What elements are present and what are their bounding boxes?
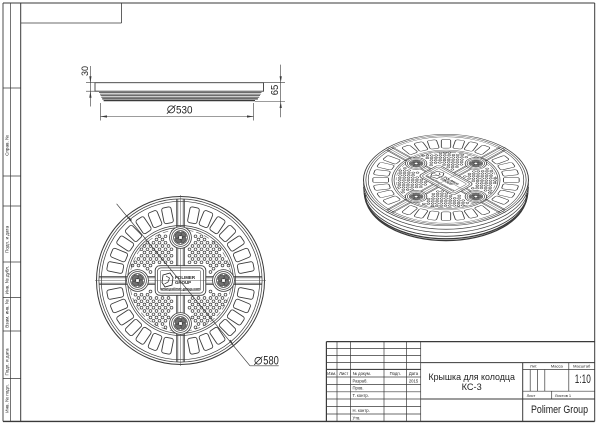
svg-text:www.polimer-group.com: www.polimer-group.com — [160, 287, 201, 291]
svg-text:1:10: 1:10 — [575, 374, 591, 386]
svg-text:Н. контр.: Н. контр. — [353, 408, 370, 413]
svg-text:Изм.: Изм. — [327, 371, 336, 376]
svg-text:Крышка для колодца: Крышка для колодца — [428, 372, 515, 382]
svg-text:Лист: Лист — [339, 371, 348, 376]
svg-text:Разраб.: Разраб. — [353, 378, 368, 383]
svg-text:Масштаб: Масштаб — [573, 364, 591, 369]
svg-text:Утв.: Утв. — [353, 415, 361, 420]
svg-text:Т. контр.: Т. контр. — [353, 393, 369, 398]
svg-text:Подп. и дата: Подп. и дата — [4, 348, 9, 376]
svg-text:65: 65 — [270, 84, 281, 95]
svg-text:2015: 2015 — [409, 378, 419, 383]
svg-text:Подп.: Подп. — [390, 371, 401, 376]
svg-text:Polimer Group: Polimer Group — [531, 404, 588, 416]
svg-text:Инв. № подл.: Инв. № подл. — [4, 384, 9, 413]
svg-text:Дата: Дата — [409, 371, 419, 376]
svg-text:КС-3: КС-3 — [462, 382, 482, 392]
svg-text:Масса: Масса — [551, 364, 564, 369]
svg-text:Подп. и дата: Подп. и дата — [4, 226, 9, 254]
svg-text:№ докум.: № докум. — [353, 371, 371, 376]
svg-text:580: 580 — [263, 356, 279, 368]
svg-text:Лит.: Лит. — [530, 364, 537, 369]
svg-text:Лист: Лист — [527, 393, 536, 398]
svg-text:Пров.: Пров. — [353, 386, 364, 391]
svg-text:Инв. № дубл.: Инв. № дубл. — [4, 266, 9, 294]
svg-text:30: 30 — [80, 66, 91, 76]
svg-text:Справ. №: Справ. № — [4, 135, 9, 156]
svg-text:Листов 1: Листов 1 — [555, 393, 572, 398]
svg-text:530: 530 — [176, 104, 193, 116]
svg-text:Взам. инв. №: Взам. инв. № — [4, 299, 9, 328]
